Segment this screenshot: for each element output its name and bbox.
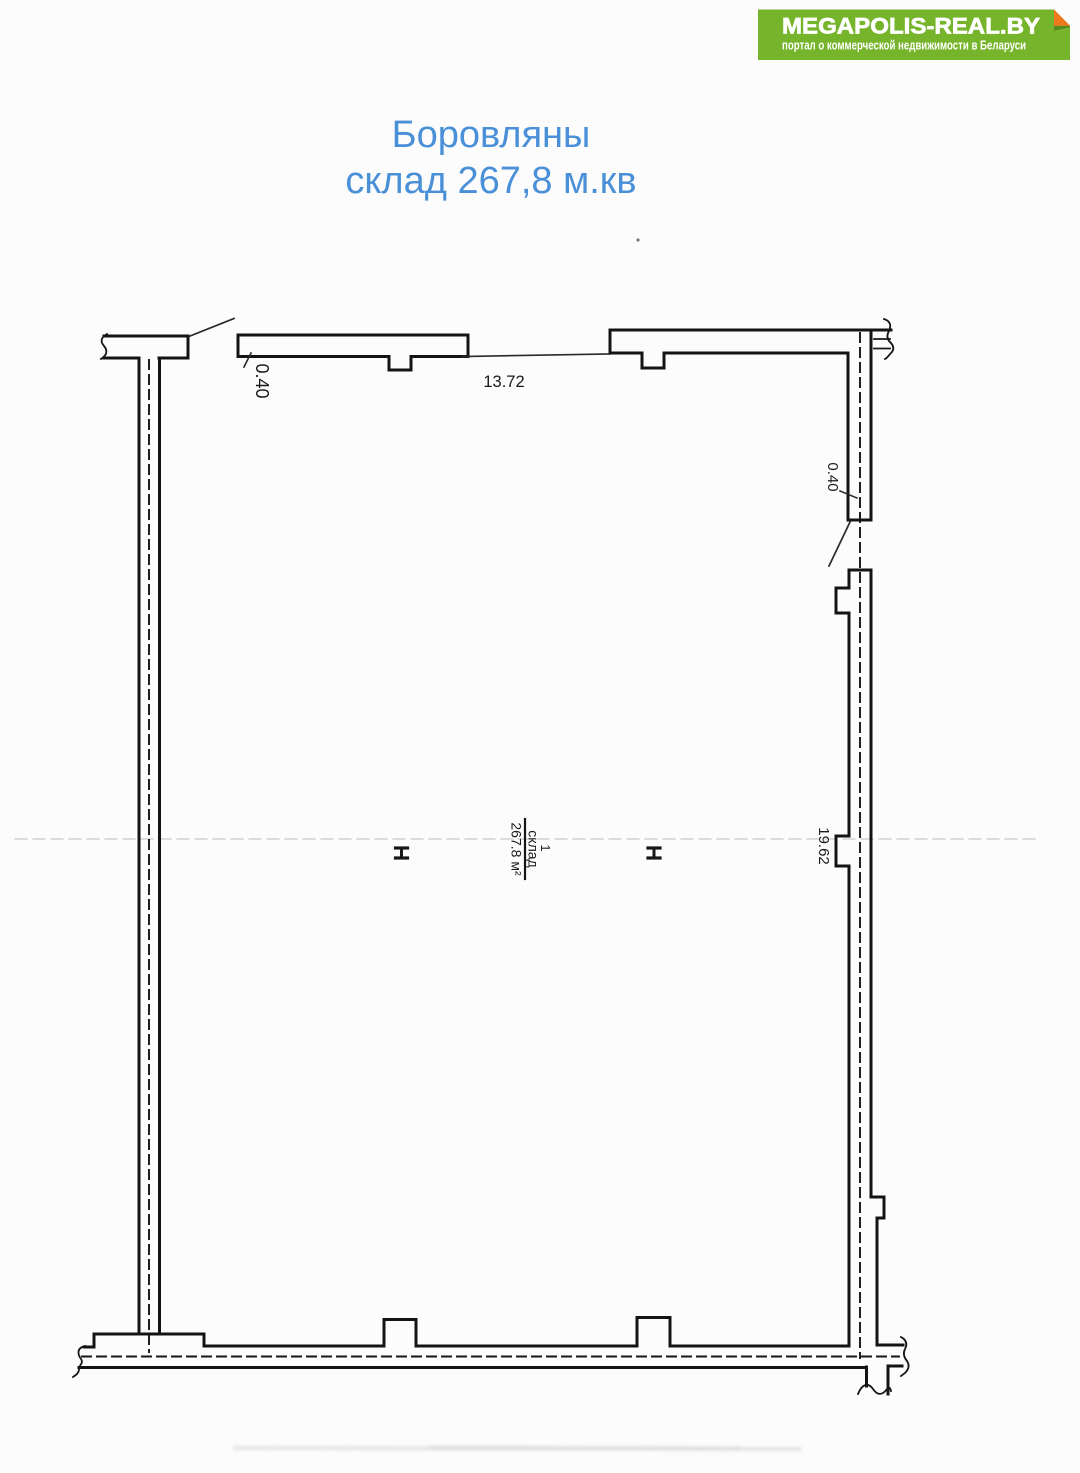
svg-text:0.40: 0.40 [252,363,272,398]
svg-text:19.62: 19.62 [815,827,832,865]
svg-text:0.40: 0.40 [824,462,841,491]
svg-text:13.72: 13.72 [483,373,524,391]
svg-text:склад: склад [526,830,542,867]
svg-text:267.8 м²: 267.8 м² [509,822,525,876]
